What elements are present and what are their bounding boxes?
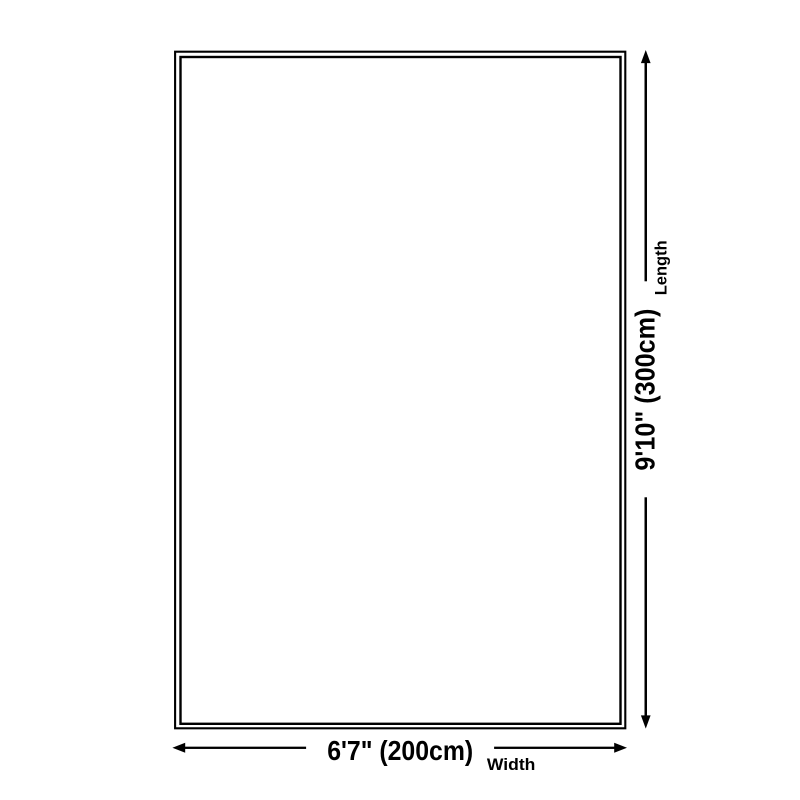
svg-text:9'10" (300cm): 9'10" (300cm)	[629, 309, 660, 471]
svg-text:Width: Width	[487, 755, 536, 774]
svg-text:6'7" (200cm): 6'7" (200cm)	[327, 735, 473, 766]
svg-text:Length: Length	[651, 240, 670, 295]
